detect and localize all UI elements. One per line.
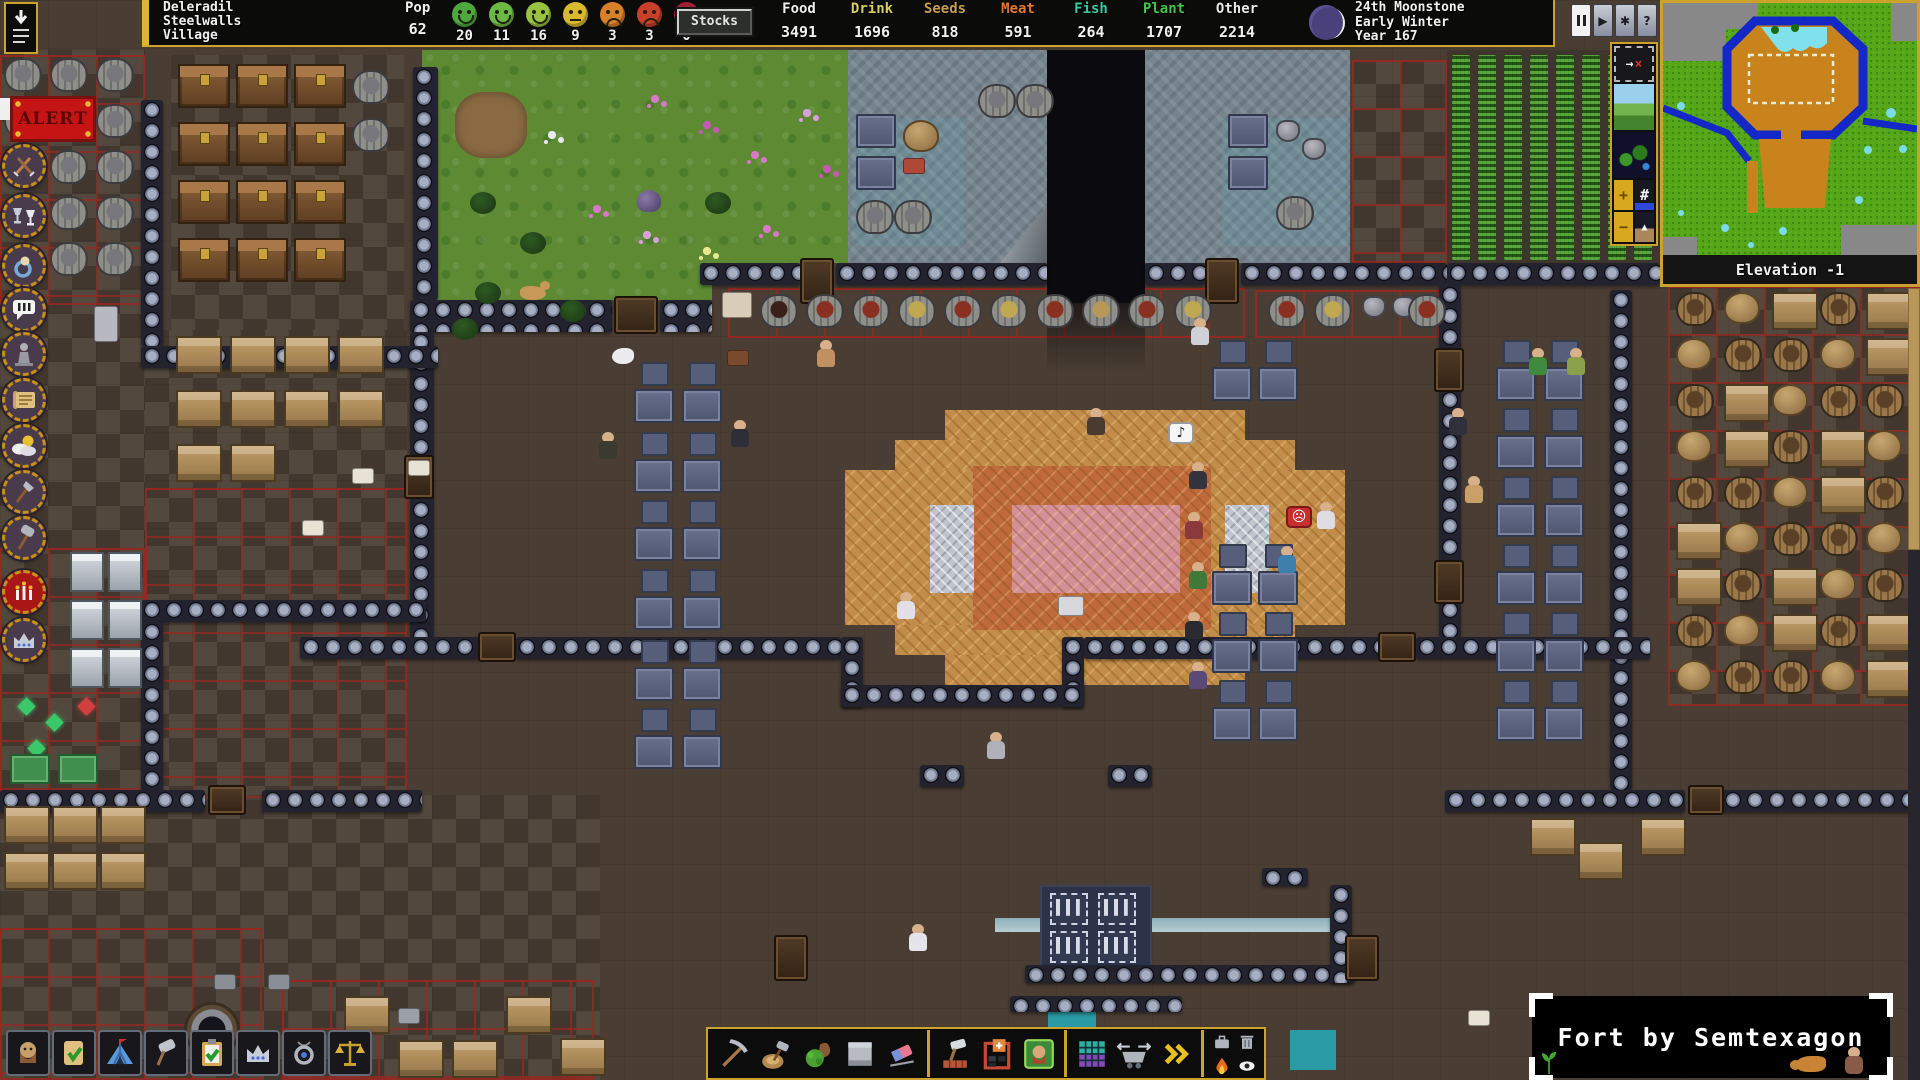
item-sprite [398,1008,420,1024]
bush-sprite [560,300,586,322]
wall-sprite [262,790,422,812]
mood-displeased-face: 3 [599,2,626,45]
dining-table [682,389,722,423]
dining-chair [1219,680,1247,704]
places-button[interactable] [98,1030,142,1076]
more-tools-button[interactable] [1155,1032,1197,1076]
dining-table [682,459,722,493]
dwarf-sprite[interactable] [908,924,928,951]
dwarf-sprite[interactable] [1184,612,1204,639]
resource-value: 1696 [842,23,902,41]
dining-table [1258,367,1298,401]
stockpile-item [1866,384,1904,418]
stockpile-item [52,852,98,890]
stockpile-item [1820,476,1866,514]
wall-sprite [516,637,841,659]
zone-button[interactable] [1018,1032,1060,1076]
dwarf-sprite[interactable] [896,592,916,619]
stockpile-item [1772,384,1808,416]
dump-button[interactable] [1235,1030,1259,1053]
stockpile-item [1724,568,1762,602]
flower-sprite [700,118,714,132]
game-date: 24th Moonstone Early Winter Year 167 [1355,1,1465,45]
stockpile-item [284,336,330,374]
gtable-sprite [10,754,50,784]
scroll-check-icon [58,1037,90,1069]
resource-label: Seeds [915,1,975,18]
dwarf-sprite[interactable] [816,340,836,367]
help-button[interactable]: ? [1637,4,1657,37]
barrel-sprite [1128,294,1166,328]
barrel-sprite [978,84,1016,118]
dwarf-sprite[interactable] [730,420,750,447]
zone-face-icon [1022,1037,1056,1071]
wall-sprite [1010,996,1182,1012]
stockpile-item [70,552,104,592]
scales-icon [334,1037,366,1069]
stockpile-item [1820,568,1856,600]
flower-sprite [590,202,604,216]
barrel-sprite [1036,294,1074,328]
elevation-view-button[interactable]: ▲ [1635,212,1654,242]
dwarf-sprite[interactable] [1190,318,1210,345]
stockpile-item [178,238,230,282]
bookcase-sprite [1098,931,1136,963]
resource-seeds: Seeds818 [915,1,975,41]
dining-table [1212,707,1252,741]
minecart-icon [1117,1037,1151,1071]
pot-sprite [1276,120,1300,142]
build-structure-icon [938,1037,972,1071]
resource-label: Plant [1134,1,1194,18]
stockpile-item [1820,614,1858,648]
stockpile-item [1820,338,1856,370]
flower-sprite [760,222,774,236]
dining-chair [641,500,669,524]
stockpile-item [1724,522,1760,554]
dining-chair [689,708,717,732]
wall-sprite [141,100,163,346]
dwarf-sprite[interactable] [1188,662,1208,689]
tasks-button[interactable] [52,1030,96,1076]
cat-sprite[interactable] [520,286,546,300]
help-icon: ? [1644,14,1651,28]
stockpile-item [50,150,88,184]
labor-button[interactable] [144,1030,188,1076]
citizens-button[interactable] [6,1030,50,1076]
mood-content-face: 16 [525,2,552,45]
barrel-sprite [352,70,390,104]
sidebar-building-button[interactable] [2,516,46,560]
dwarf-sprite[interactable] [1277,546,1297,573]
stockpile-button[interactable] [976,1032,1018,1076]
arrow-icon: → [1626,57,1634,72]
dining-table [634,735,674,769]
mood-angry-face: 3 [636,2,663,45]
speech-bubble-icon [9,295,39,325]
stockpile-item [1820,430,1866,468]
fort-name: Deleradil Steelwalls Village [163,1,241,43]
wall-sprite [1262,868,1308,886]
door-sprite [1688,785,1724,815]
dwarf-sprite[interactable] [1528,348,1548,375]
crate-sprite [1640,818,1686,856]
door-sprite [1345,935,1379,981]
stockpile-item [1724,476,1762,510]
sidebar-records-button[interactable] [2,378,46,422]
watermark-text: Fort by Semtexagon [1532,996,1890,1078]
dining-table [634,459,674,493]
rbubble-sprite: ☹ [1286,506,1312,528]
wall-sprite [1610,290,1632,790]
elevation-label: Elevation -1 [1663,255,1917,284]
stockpile-item [50,58,88,92]
sidebar-tavern-button[interactable] [2,194,46,238]
stockpile-item [178,122,230,166]
stockpile-item [1772,338,1810,372]
crop-sprite [1530,55,1548,260]
wall-sprite [700,263,800,285]
designation-toolbar [706,1027,1266,1080]
dining-chair [1503,408,1531,432]
dining-chair [1265,612,1293,636]
stockpile-item [1772,614,1818,652]
mood-count: 20 [451,27,478,45]
flower-sprite [640,228,654,242]
work-orders-button[interactable] [190,1030,234,1076]
dining-table [1496,503,1536,537]
moon-phase-icon [1309,5,1345,41]
stockpile-item [294,180,346,224]
sidebar-woodcutting-button[interactable] [2,470,46,514]
dwarf-sprite[interactable] [1086,408,1106,435]
chop-button[interactable] [755,1032,797,1076]
tree-stump-icon [759,1037,793,1071]
trash-icon [1237,1032,1257,1052]
stockpile-item [96,104,134,138]
door-sprite [208,785,246,815]
crate-sprite [560,1038,606,1076]
door-sprite [614,296,658,334]
stockpile-item [96,150,134,184]
dining-chair [1503,544,1531,568]
play-button[interactable]: ▶ [1593,4,1613,37]
cavern-view-button[interactable] [1614,132,1654,178]
sidebar-nobility-button[interactable] [2,618,46,662]
sidebar-announcements-button[interactable] [2,288,46,332]
stockpile-item [1820,292,1858,326]
crossed-swords-icon [9,151,39,181]
stockpile-item [1676,384,1714,418]
tent-icon [104,1037,136,1069]
dining-chair [1219,612,1247,636]
eye-icon [1237,1056,1257,1076]
build-button[interactable] [934,1032,976,1076]
stockpile-item [1866,614,1912,652]
dwarf-sprite[interactable] [1188,462,1208,489]
dining-table [1258,707,1298,741]
bubble-sprite: ♪ [1168,422,1194,444]
item-sprite [903,158,925,174]
dwarf-sprite[interactable] [1566,348,1586,375]
stockpile-item [108,600,142,640]
stockpile-item [96,242,134,276]
stockpile-item [1866,660,1912,698]
dining-table [1544,571,1584,605]
table-sprite [1228,156,1268,190]
stockpile-item [284,390,330,428]
flame-icon [1212,1056,1232,1076]
smooth-button[interactable] [839,1032,881,1076]
flower-sprite [800,106,814,120]
map-scrollbar[interactable] [1908,288,1920,1080]
door-sprite [1434,560,1464,604]
wall-sprite [1108,765,1152,787]
stockpile-item [96,196,134,230]
bush-sprite [475,282,501,304]
dirt-sprite [455,92,527,158]
stocks-button[interactable]: Stocks [677,9,752,35]
objects-button[interactable] [282,1030,326,1076]
stockpile-item [338,336,384,374]
dwarf-sprite[interactable] [986,732,1006,759]
stockpile-item [1724,384,1770,422]
mood-ecstatic-face: 20 [451,2,478,45]
pause-button[interactable] [1571,4,1591,37]
resource-label: Meat [988,1,1048,18]
displeased-face-icon [600,2,625,27]
minimap-image[interactable] [1663,3,1917,255]
barrel-sprite [894,200,932,234]
barrel-sprite [944,294,982,328]
dog-sprite [1796,1056,1826,1072]
stockpile-item [230,390,276,428]
dining-chair [1265,680,1293,704]
stockpile-item [1676,568,1722,606]
stockpile-item [1866,476,1904,510]
wall-sprite [1445,790,1685,812]
game-screen: ♪☹ Deleradil Steelwalls Village Pop 62 2… [0,0,1920,1080]
bird-sprite[interactable] [612,348,634,364]
resource-label: Other [1207,1,1267,18]
view-controls: →× + # − ▲ [1610,42,1658,246]
stockpile-item [1772,568,1818,606]
wall-sprite [141,600,426,622]
crop-sprite [1452,55,1470,260]
sidebar-temple-button[interactable] [2,570,46,614]
barrel-sprite [1268,294,1306,328]
happy-face-icon [489,2,514,27]
gather-plants-icon [801,1037,835,1071]
sidebar-military-button[interactable] [2,144,46,188]
dining-table [1496,571,1536,605]
toolbar-separator [927,1030,930,1077]
dwarf-sprite[interactable] [598,432,618,459]
weather-icon [9,431,39,461]
crate-sprite [230,444,276,482]
sidebar-children-button[interactable] [2,244,46,288]
dining-chair [1503,340,1531,364]
fort-watermark: Fort by Semtexagon [1532,996,1890,1078]
content-face-icon [526,2,551,27]
stockpile-item [100,852,146,890]
crop-sprite [1582,55,1600,260]
dwarf-sprite [1844,1047,1864,1074]
stockpile-item [1772,660,1810,694]
zoom-out-button[interactable]: − [1614,212,1633,242]
door-sprite [1205,258,1239,304]
grass-sprite [422,50,712,300]
settings-button[interactable]: ✱ [1615,4,1635,37]
stockpile-item [338,390,384,428]
mood-happy-face: 11 [488,2,515,45]
briefcase-icon [1212,1032,1232,1052]
nobles-button[interactable] [236,1030,280,1076]
stockpile-item [1724,338,1762,372]
item-sprite [727,350,749,366]
squads-button[interactable] [1210,1030,1234,1053]
justice-button[interactable] [328,1030,372,1076]
map-scroll-thumb[interactable] [1908,288,1920,550]
sidebar-petitions-button[interactable] [2,332,46,376]
barrel-sprite [990,294,1028,328]
dining-chair [1503,476,1531,500]
flower-sprite [748,148,762,162]
dining-chair [1219,340,1247,364]
grid-toggle-button[interactable]: # [1635,180,1654,210]
dining-table [1258,639,1298,673]
stockpile-item [1724,660,1762,694]
sim-controls: ▶ ✱ ? [1571,4,1657,37]
mood-count: 11 [488,27,515,45]
dining-chair [689,569,717,593]
fine-face-icon [563,2,588,27]
dining-table [1212,367,1252,401]
dining-table [1496,435,1536,469]
stockpile-item [236,180,288,224]
toolbar-separator [1064,1030,1067,1077]
bookcase-sprite [1050,931,1088,963]
stockpile-item [1676,614,1714,648]
zoom-in-button[interactable]: + [1614,180,1633,210]
pot-sprite [1362,296,1386,318]
crown-icon [242,1037,274,1069]
surface-view-button[interactable] [1614,84,1654,130]
table-sprite [1228,114,1268,148]
stockpile-item [178,180,230,224]
announcement-icon [8,8,34,48]
dining-chair [689,362,717,386]
barrel-sprite [852,294,890,328]
pot-sprite [1302,138,1326,160]
stockpile-item [1724,614,1760,646]
dwarf-sprite[interactable] [1316,502,1336,529]
dwarf-sprite[interactable] [1464,476,1484,503]
scroll-icon [9,385,39,415]
stockpile-item [50,242,88,276]
dining-chair [641,362,669,386]
bag-sprite [903,120,939,152]
stockpile-item [176,336,222,374]
gather-button[interactable] [797,1032,839,1076]
hauling-button[interactable] [1113,1032,1155,1076]
wall-sprite [836,263,1047,285]
dining-chair [689,432,717,456]
flower-sprite [700,244,714,258]
stockpile-item [176,390,222,428]
item-sprite [214,974,236,990]
stockpile-item [294,238,346,282]
stockpile-item [294,122,346,166]
visibility-button[interactable] [1235,1054,1259,1077]
dining-chair [641,708,669,732]
stockpile-item [1866,430,1902,462]
stockpile-item [236,64,288,108]
cancel-selection-button[interactable]: →× [1614,46,1654,82]
stockpile-item [1866,522,1902,554]
alert-badge[interactable]: ALERT [10,96,96,142]
dining-chair [1219,544,1247,568]
silver-sprite [930,505,974,593]
barrel-sprite [806,294,844,328]
stockpile-item [236,122,288,166]
gear-icon: ✱ [1620,14,1630,28]
barrel-sprite [352,118,390,152]
bush-sprite [452,318,478,340]
resource-label: Food [769,1,829,18]
wall-sprite [141,622,163,796]
turkey-sprite[interactable] [637,190,661,212]
bush-sprite [520,232,546,254]
dark-sprite [1047,50,1145,285]
crop-sprite [1478,55,1496,260]
stockpile-item [1866,568,1904,602]
magma-button[interactable] [1210,1054,1234,1077]
resource-value: 1707 [1134,23,1194,41]
stockpile-grid-button[interactable] [1071,1032,1113,1076]
stockpile-item [1676,338,1712,370]
stockpile-item [1772,430,1810,464]
stockpile-item [236,238,288,282]
dig-button[interactable] [713,1032,755,1076]
item-sprite [302,520,324,536]
stockpile-item [1772,476,1808,508]
chevrons-icon [1159,1037,1193,1071]
amulet-icon [288,1037,320,1069]
dwarf-sprite[interactable] [1188,562,1208,589]
item-sprite [268,974,290,990]
dining-chair [641,432,669,456]
dining-table [1544,435,1584,469]
crop-sprite [1556,55,1574,260]
resource-food: Food3491 [769,1,829,41]
redgrid-sprite [1352,60,1447,263]
dwarf-sprite[interactable] [1184,512,1204,539]
crate-sprite [176,444,222,482]
stockpile-item [4,58,42,92]
dining-chair [1265,340,1293,364]
bush-sprite [705,192,731,214]
erase-button[interactable] [881,1032,923,1076]
reports-button[interactable] [4,2,38,54]
minimap-panel: Elevation -1 [1660,0,1920,287]
dining-chair [689,640,717,664]
door-sprite [478,632,516,662]
dwarf-sprite[interactable] [1448,408,1468,435]
sidebar-weather-button[interactable] [2,424,46,468]
wall-sprite [1025,965,1355,983]
dining-chair [641,640,669,664]
